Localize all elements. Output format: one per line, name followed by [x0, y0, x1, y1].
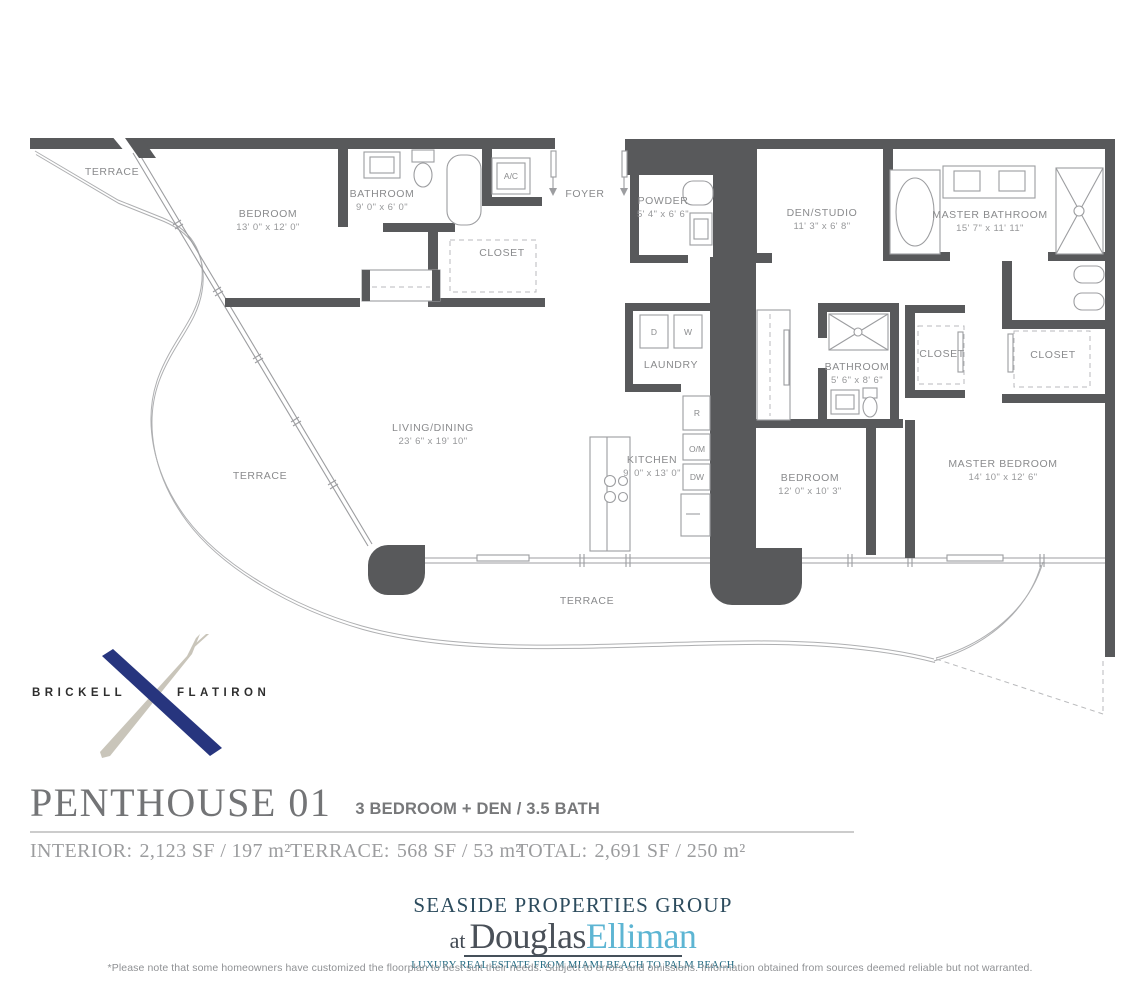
label-terrace-bottom: TERRACE [560, 595, 614, 607]
terrace-boundary [35, 151, 1103, 714]
stat-total: TOTAL:2,691 SF / 250 m² [516, 840, 746, 863]
label-oven-micro: O/M [689, 444, 705, 454]
broker-branding: SEASIDE PROPERTIES GROUP at DouglasEllim… [3, 893, 1140, 971]
label-powder: POWDER [638, 195, 689, 207]
label-master-bath: MASTER BATHROOM [932, 209, 1048, 221]
broker-name-light: Elliman [586, 916, 696, 956]
label-bathroom: BATHROOM [350, 188, 415, 200]
broker-group-name: SEASIDE PROPERTIES GROUP [3, 893, 1140, 918]
label-foyer: FOYER [565, 188, 604, 200]
svg-text:12' 0" x 10' 3": 12' 0" x 10' 3" [778, 486, 841, 497]
label-dryer: D [651, 327, 657, 337]
label-laundry: LAUNDRY [644, 359, 698, 371]
logo-text-brickell: BRICKELL [32, 687, 126, 699]
page-title: PENTHOUSE 01 [30, 783, 331, 823]
stat-total-label: TOTAL: [516, 840, 588, 862]
label-closet-left: CLOSET [479, 247, 525, 259]
svg-text:5' 4" x 6' 6": 5' 4" x 6' 6" [637, 209, 689, 220]
stat-terrace-label: TERRACE: [290, 840, 390, 862]
svg-text:14' 10" x 12' 6": 14' 10" x 12' 6" [968, 472, 1037, 483]
svg-text:23' 6" x 19' 10": 23' 6" x 19' 10" [398, 436, 467, 447]
title-row: PENTHOUSE 01 3 BEDROOM + DEN / 3.5 BATH [30, 783, 600, 823]
label-living: LIVING/DINING [392, 422, 474, 434]
title-divider [30, 831, 854, 833]
brickell-flatiron-logo: BRICKELL FLATIRON [22, 634, 278, 764]
label-bedroom: BEDROOM [239, 208, 297, 220]
label-ac: A/C [504, 171, 518, 181]
svg-text:11' 3" x 6' 8": 11' 3" x 6' 8" [794, 221, 851, 232]
label-dishwasher: DW [690, 472, 704, 482]
flyer-page: TERRACE BEDROOM 13' 0" x 12' 0" BATHROOM… [0, 0, 1140, 986]
label-closet2: CLOSET [1030, 349, 1076, 361]
svg-text:9' 0" x 6' 0": 9' 0" x 6' 0" [356, 202, 408, 213]
logo-text-flatiron: FLATIRON [177, 687, 270, 699]
broker-name-dark: Douglas [469, 916, 586, 956]
stat-terrace-value: 568 SF / 53 m² [397, 840, 522, 862]
label-closet1: CLOSET [919, 348, 965, 360]
broker-at: at [450, 928, 466, 953]
disclaimer-text: *Please note that some homeowners have c… [0, 962, 1140, 974]
stat-terrace: TERRACE:568 SF / 53 m² [290, 840, 522, 863]
label-terrace-top: TERRACE [85, 166, 139, 178]
stat-interior-label: INTERIOR: [30, 840, 132, 862]
stat-interior: INTERIOR:2,123 SF / 197 m² [30, 840, 291, 863]
svg-text:15' 7" x 11' 11": 15' 7" x 11' 11" [956, 223, 1024, 234]
label-master-bedroom: MASTER BEDROOM [948, 458, 1057, 470]
broker-logo: at DouglasElliman [3, 918, 1140, 954]
stat-total-value: 2,691 SF / 250 m² [595, 840, 746, 862]
svg-text:13' 0" x 12' 0": 13' 0" x 12' 0" [236, 222, 299, 233]
label-terrace-left: TERRACE [233, 470, 287, 482]
label-range: R [694, 408, 700, 418]
label-washer: W [684, 327, 692, 337]
svg-text:5' 6" x 8' 6": 5' 6" x 8' 6" [831, 375, 883, 386]
stat-interior-value: 2,123 SF / 197 m² [139, 840, 290, 862]
label-den: DEN/STUDIO [787, 207, 858, 219]
svg-text:9' 0" x 13' 0": 9' 0" x 13' 0" [623, 468, 681, 479]
label-kitchen: KITCHEN [627, 454, 677, 466]
label-bedroom2: BEDROOM [781, 472, 839, 484]
unit-configuration: 3 BEDROOM + DEN / 3.5 BATH [355, 800, 600, 819]
label-bathroom2: BATHROOM [825, 361, 890, 373]
